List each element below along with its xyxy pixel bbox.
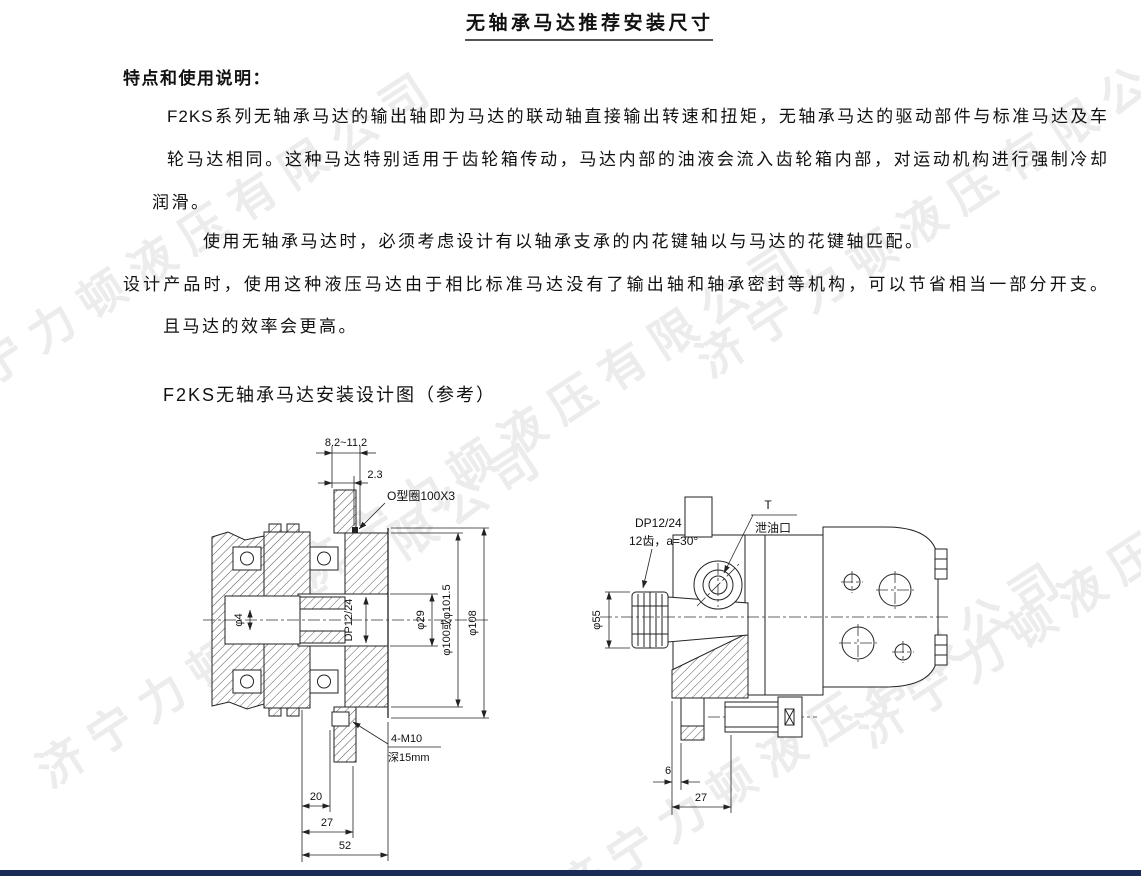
intro-line: 使用无轴承马达时，必须考虑设计有以轴承支承的内花键轴以与马达的花键轴匹配。 xyxy=(203,231,925,253)
oring-label: O型圈100X3 xyxy=(387,489,455,503)
dim-gap-label: 8.2~11.2 xyxy=(325,437,367,449)
drain-port xyxy=(694,561,742,609)
left-section-drawing: 8.2~11.2 2.3 O型圈100X3 φ4 DP12/24 xyxy=(195,420,505,876)
dim-27-label: 27 xyxy=(695,792,707,804)
figure-caption: F2KS无轴承马达安装设计图（参考） xyxy=(163,381,496,407)
intro-line: 设计产品时，使用这种液压马达由于相比标准马达没有了输出轴和轴承密封等机构，可以节… xyxy=(123,274,1108,296)
port-label-t: T xyxy=(764,498,772,512)
mounting-bolt xyxy=(708,697,817,737)
dim-d55-label: φ55 xyxy=(591,610,603,629)
spline-label: DP12/24 xyxy=(343,599,355,642)
dim-d108-label: φ108 xyxy=(467,610,479,636)
thread-depth-label: 深15mm xyxy=(388,751,430,764)
dim-offset-label: 2.3 xyxy=(367,469,382,481)
page-title: 无轴承马达推荐安装尺寸 xyxy=(466,8,714,35)
top-port-boss xyxy=(685,497,712,537)
dim-52-label: 52 xyxy=(339,840,351,852)
footer-bar xyxy=(0,870,1141,876)
intro-line: F2KS系列无轴承马达的输出轴即为马达的联动轴直接输出转速和扭矩，无轴承马达的驱… xyxy=(167,106,1108,128)
spline-note-line2: 12齿，a=30° xyxy=(629,534,698,548)
right-motor-drawing: φ55 DP12/24 12齿，a=30° T 泄油口 6 27 xyxy=(585,465,960,830)
dim-d100-label: φ100或φ101.5 xyxy=(440,584,453,655)
dim-6-label: 6 xyxy=(665,765,671,777)
port-label-name: 泄油口 xyxy=(755,521,791,535)
spline-shaft-end xyxy=(632,592,668,648)
dim-bore-label: φ4 xyxy=(233,613,245,626)
document-page: 济宁力顿液压有限公司 济宁力顿液压有限公司 济宁力顿液压有限公司 济宁力顿液压有… xyxy=(0,0,1141,876)
motor-flange-section xyxy=(225,490,388,762)
mount-foot xyxy=(681,698,704,726)
dim-20-label: 20 xyxy=(310,791,322,803)
title-underline xyxy=(465,39,713,41)
intro-line: 轮马达相同。这种马达特别适用于齿轮箱传动，马达内部的油液会流入齿轮箱内部，对运动… xyxy=(167,149,1108,171)
intro-heading: 特点和使用说明： xyxy=(123,64,271,89)
intro-line: 润滑。 xyxy=(152,192,211,214)
o-ring xyxy=(352,527,358,533)
thread-label: 4-M10 xyxy=(391,733,422,745)
dim-d29-label: φ29 xyxy=(415,610,427,629)
dim-27-label: 27 xyxy=(321,817,333,829)
spline-note-line1: DP12/24 xyxy=(635,516,682,530)
intro-line: 且马达的效率会更高。 xyxy=(163,316,358,338)
